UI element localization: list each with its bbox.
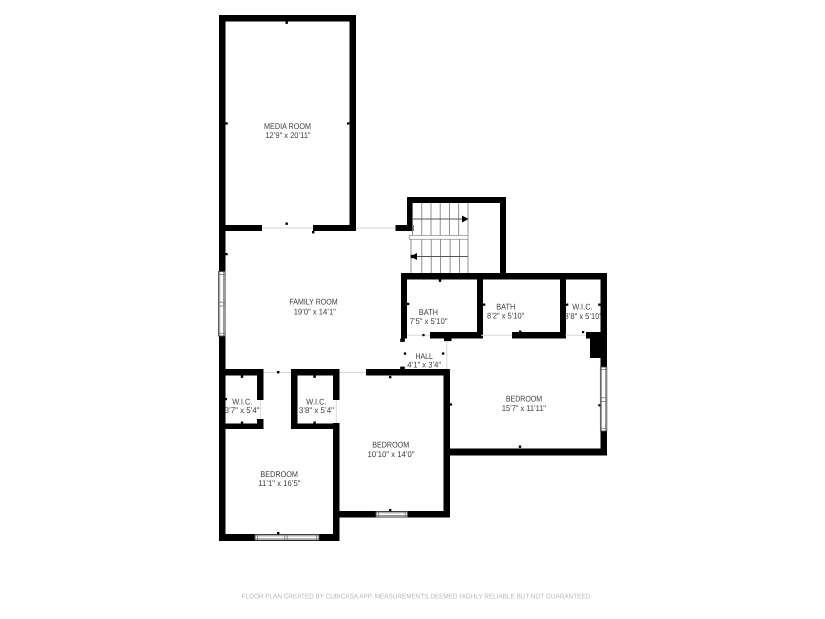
svg-text:15’7" x 11’11": 15’7" x 11’11" [502,403,546,413]
svg-text:3’8" x 5’10": 3’8" x 5’10" [565,311,603,321]
svg-text:8’2" x 5’10": 8’2" x 5’10" [487,310,524,320]
svg-text:10’10" x 14’0": 10’10" x 14’0" [368,449,415,459]
svg-text:FLOOR PLAN CREATED BY CUBICASA: FLOOR PLAN CREATED BY CUBICASA APP. MEAS… [242,594,593,601]
svg-text:3’8" x 5’4": 3’8" x 5’4" [299,405,334,415]
svg-text:11’1" x 16’5": 11’1" x 16’5" [258,478,300,488]
svg-text:BEDROOM: BEDROOM [506,393,542,403]
svg-text:12’9" x 20’11": 12’9" x 20’11" [265,130,310,140]
svg-text:FAMILY ROOM: FAMILY ROOM [289,297,337,307]
svg-text:4’1" x 3’4": 4’1" x 3’4" [407,360,441,370]
svg-text:3’7" x 5’4": 3’7" x 5’4" [225,405,260,415]
svg-text:W.I.C.: W.I.C. [572,301,593,311]
svg-text:BEDROOM: BEDROOM [372,439,409,449]
svg-text:19’0" x 14’1": 19’0" x 14’1" [294,306,336,316]
svg-text:7’5" x 5’10": 7’5" x 5’10" [410,316,448,326]
